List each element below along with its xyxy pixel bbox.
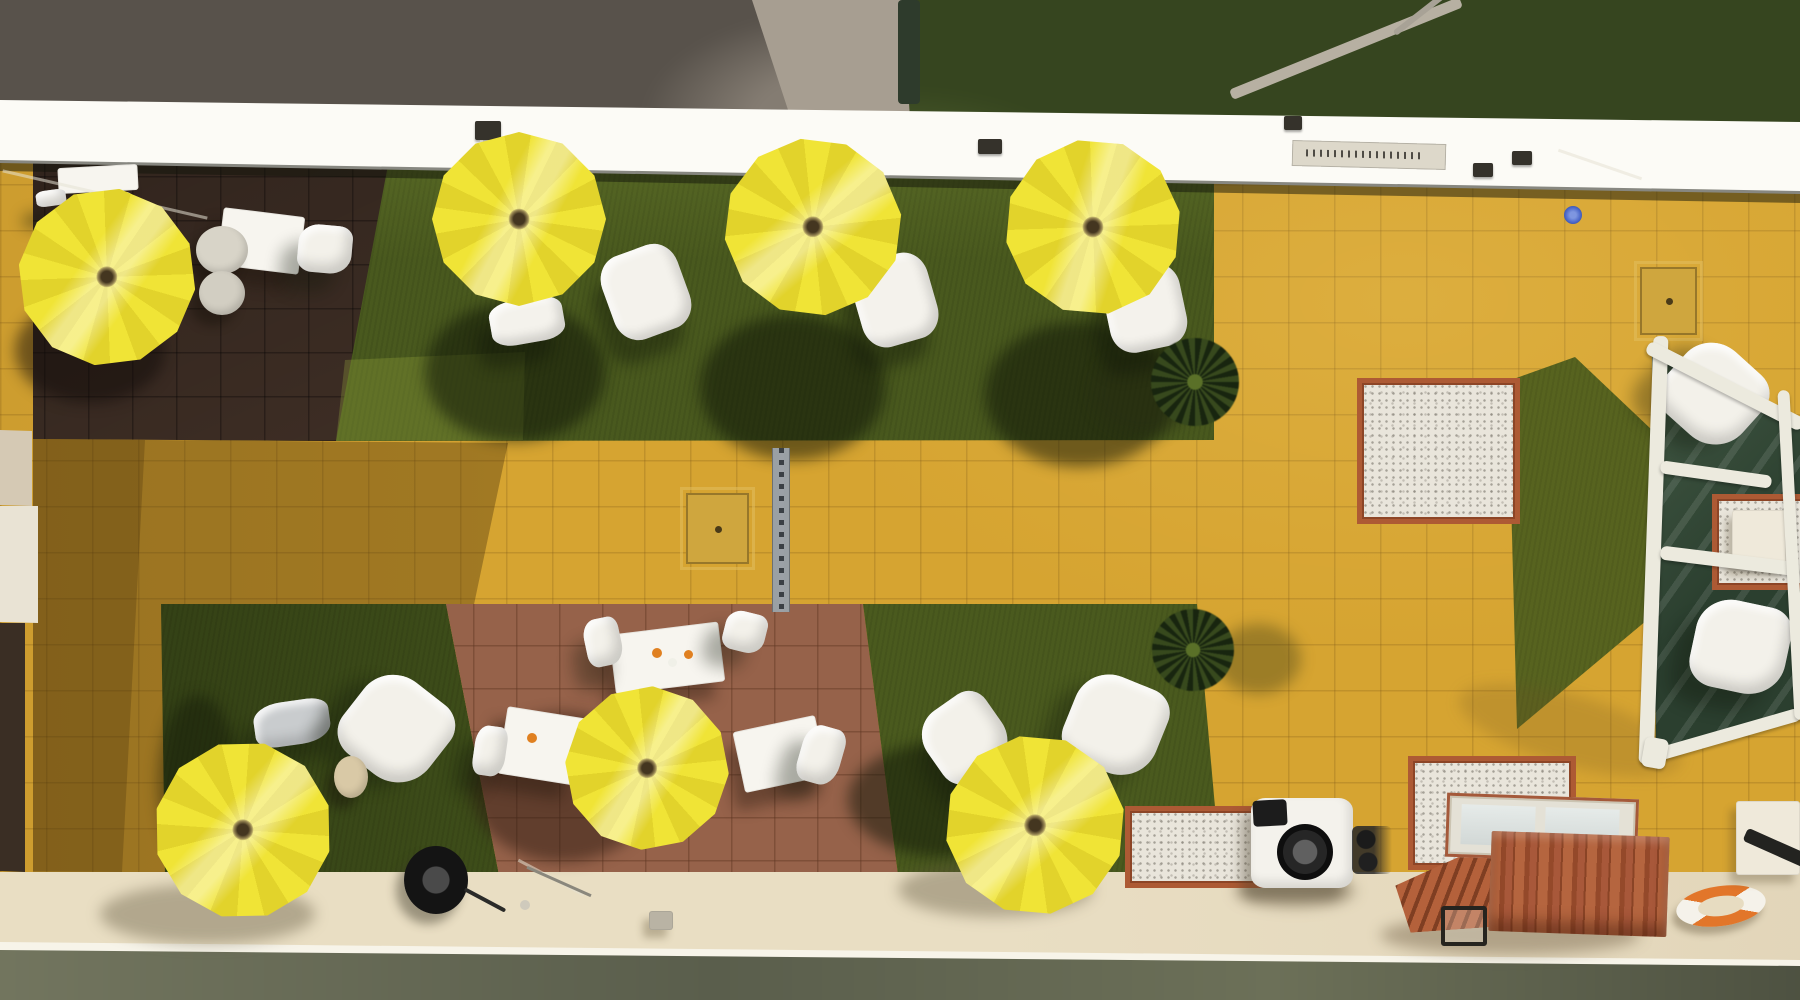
pool-light-blue — [1564, 206, 1582, 224]
edge-clamp-4 — [1284, 116, 1302, 130]
walkway-ring-small — [520, 900, 530, 910]
palm-2 — [1152, 609, 1234, 691]
bbq-body — [1488, 831, 1669, 937]
fence-post — [898, 0, 920, 104]
heat-pump-pipes — [1352, 826, 1392, 874]
round-table-1 — [196, 226, 248, 274]
roof-hatch-topright — [1640, 267, 1697, 335]
palm-1 — [1151, 338, 1239, 426]
table-topleft — [57, 164, 138, 194]
round-table-2 — [199, 271, 245, 315]
edge-sign — [1292, 140, 1447, 170]
cable-reel — [404, 846, 468, 914]
gravel-square-main — [1357, 378, 1520, 524]
edge-vent — [978, 139, 1002, 154]
edge-clamp-3 — [475, 121, 501, 140]
heat-pump-fan — [1277, 824, 1333, 880]
aerial-terrace-photo — [0, 0, 1800, 1000]
table-item-2 — [668, 658, 677, 667]
table-item-3 — [684, 650, 693, 659]
roof-hatch-walkway — [686, 493, 749, 564]
side-table-beige — [334, 756, 368, 798]
table-item-4 — [527, 733, 537, 743]
walkway-hatch-small — [649, 911, 673, 930]
heat-pump-top — [1252, 799, 1287, 827]
table-item-1 — [652, 648, 662, 658]
chair-topleft — [296, 223, 354, 276]
edge-clamp-2 — [1512, 151, 1532, 165]
shadow-umbrella-3 — [700, 315, 885, 460]
drain-channel — [772, 448, 790, 612]
edge-clamp-1 — [1473, 163, 1493, 177]
gravel-strip-left — [1125, 806, 1263, 888]
bbq-handle — [1441, 906, 1487, 946]
